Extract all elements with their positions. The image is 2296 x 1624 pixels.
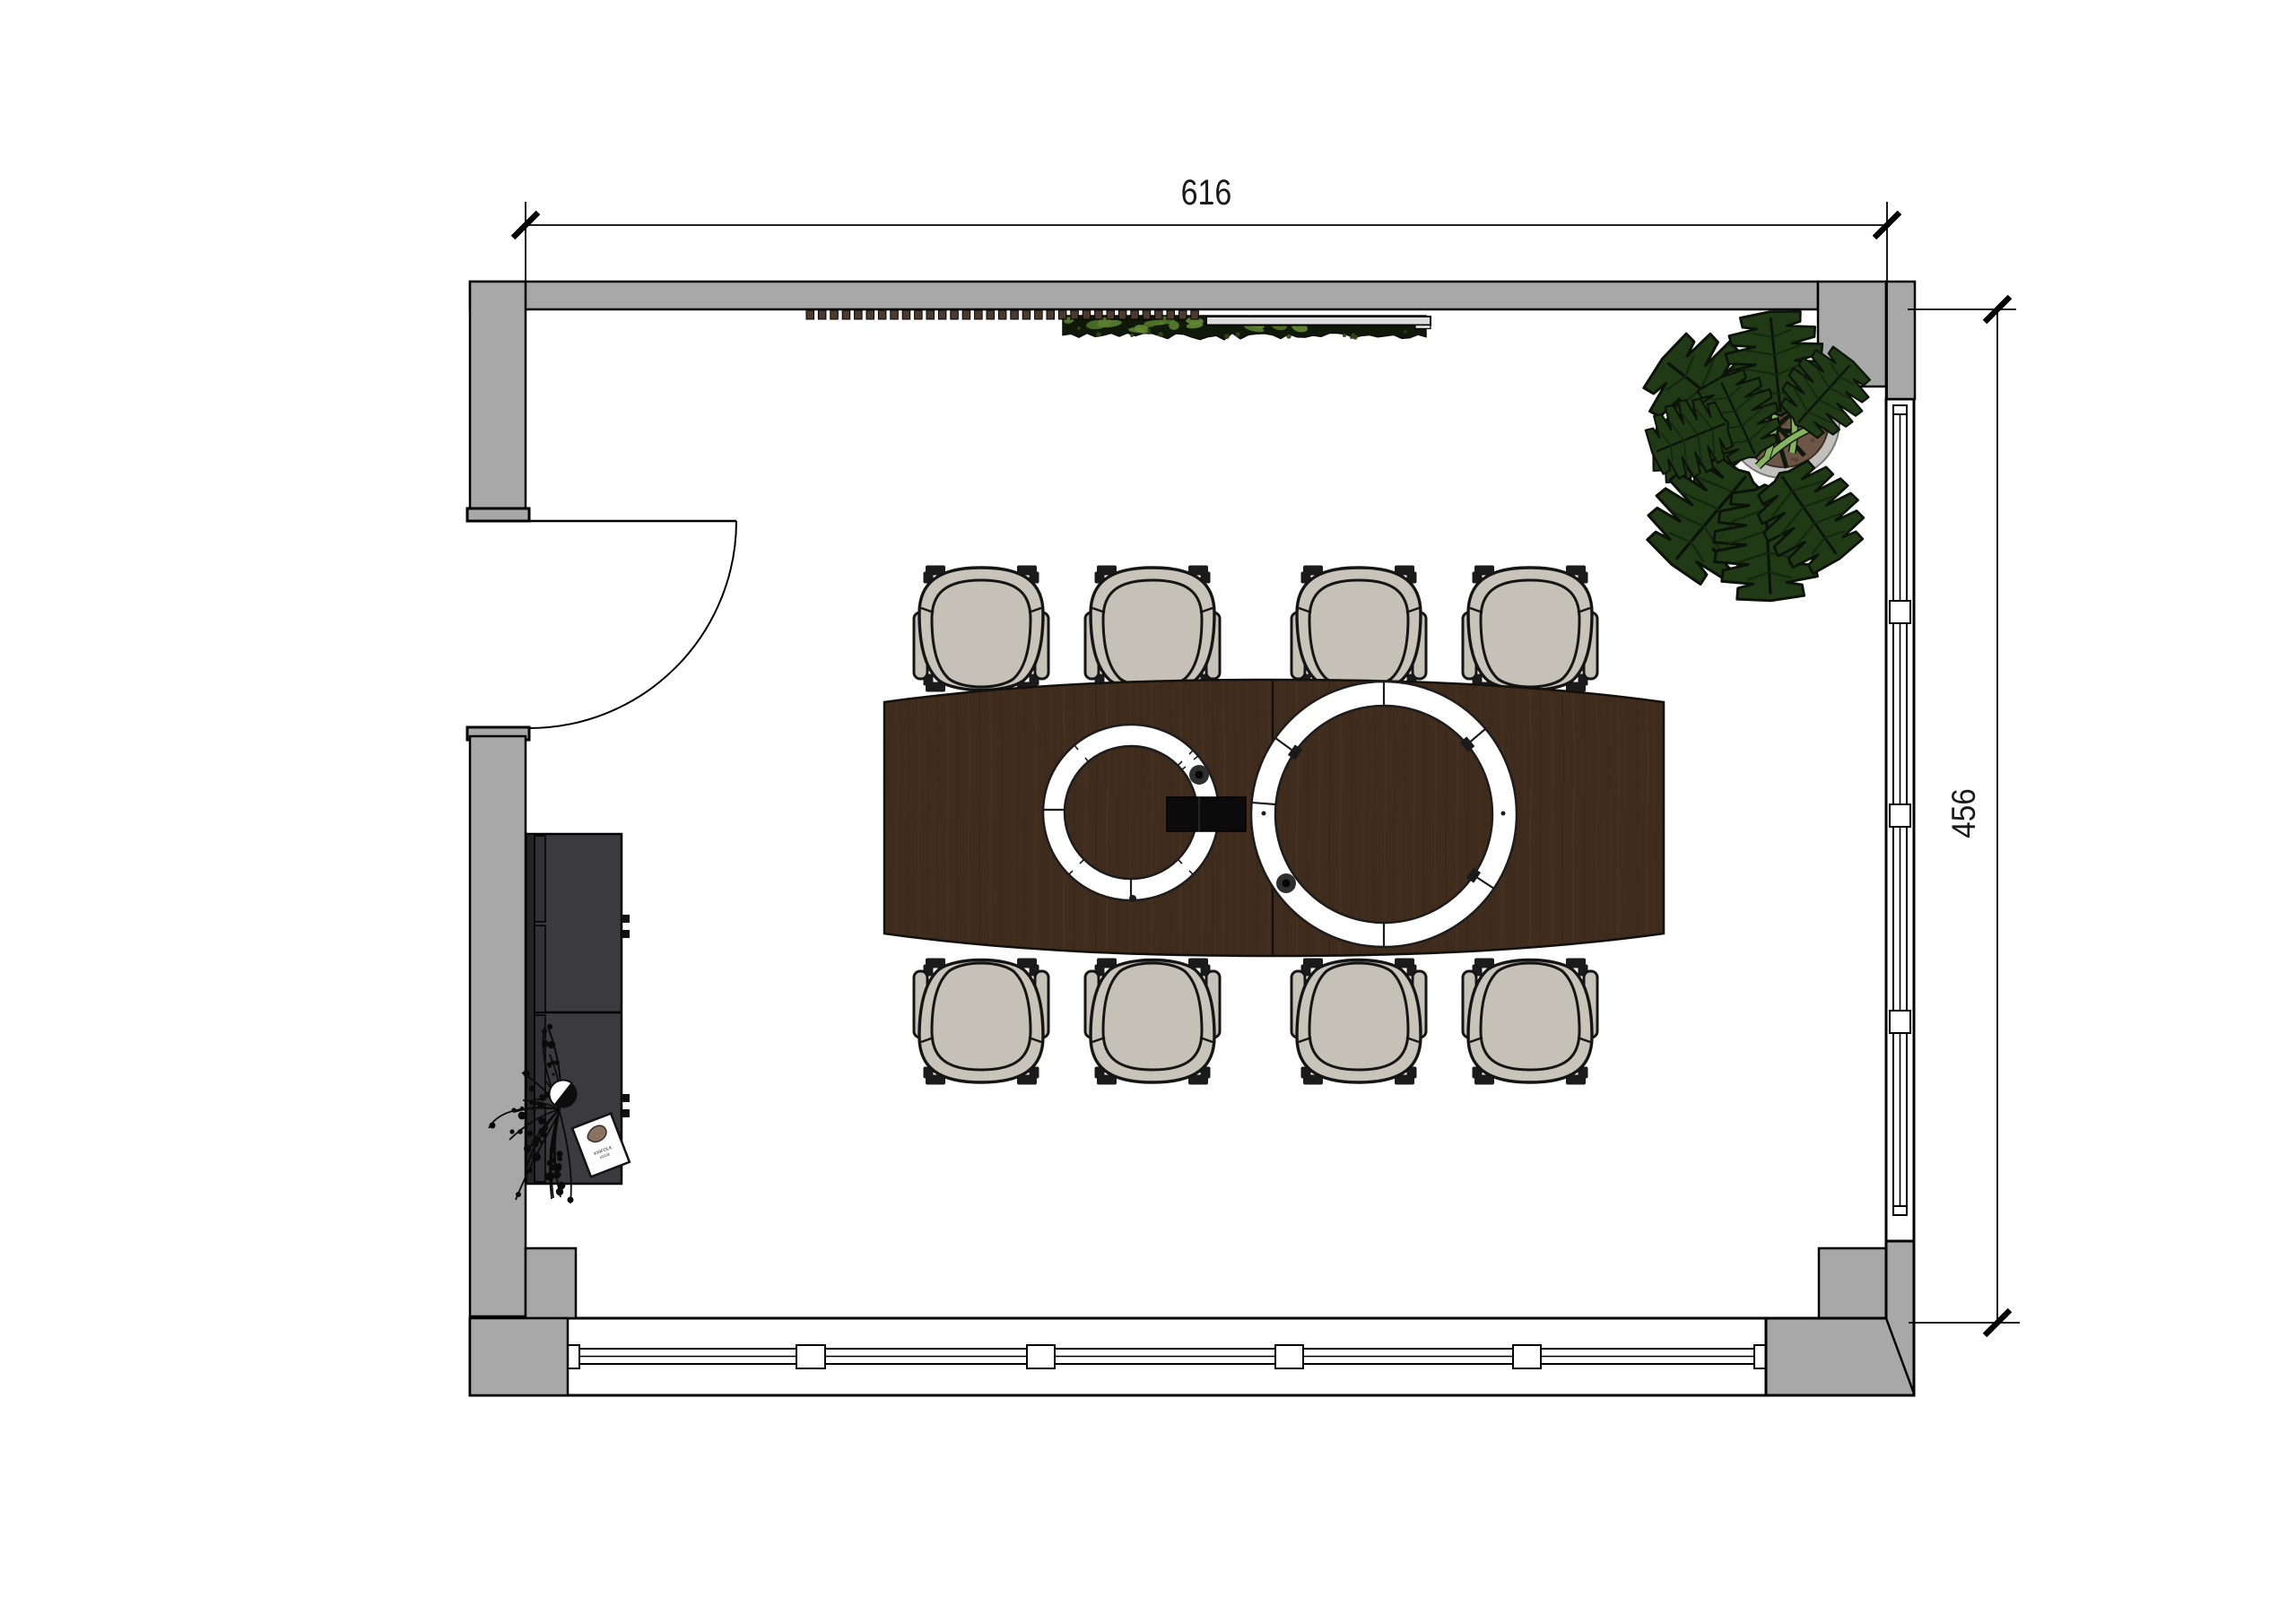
svg-text:616: 616: [1181, 171, 1232, 212]
svg-text:456: 456: [1945, 788, 1982, 838]
